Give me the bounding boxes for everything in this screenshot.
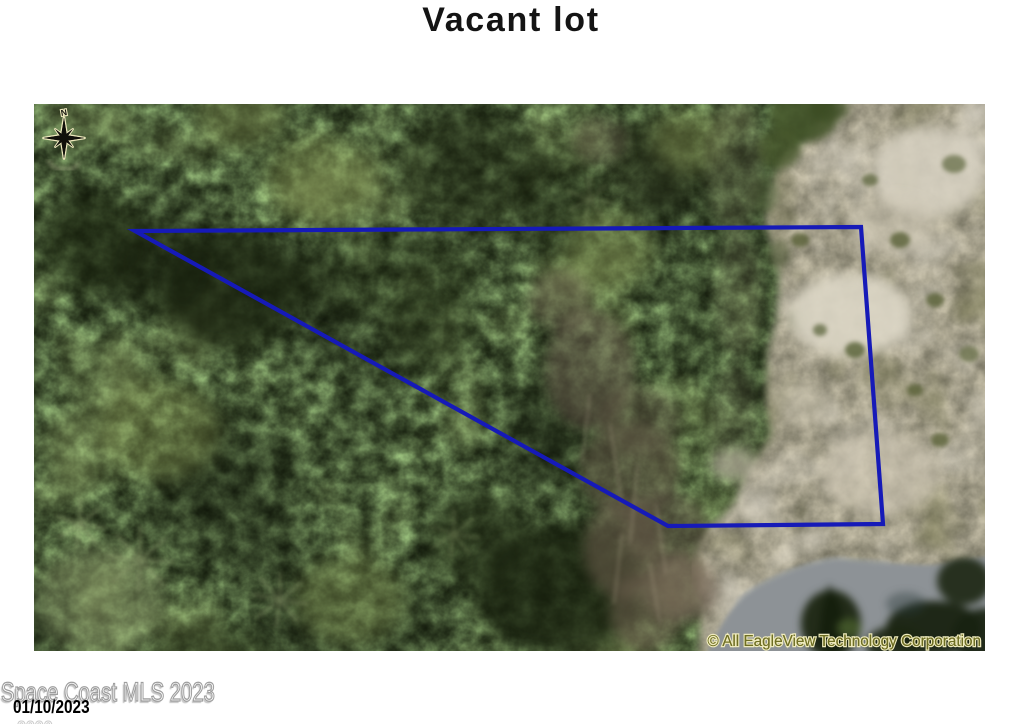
svg-text:© All EagleView Technology Cor: © All EagleView Technology Corporation xyxy=(708,633,981,650)
